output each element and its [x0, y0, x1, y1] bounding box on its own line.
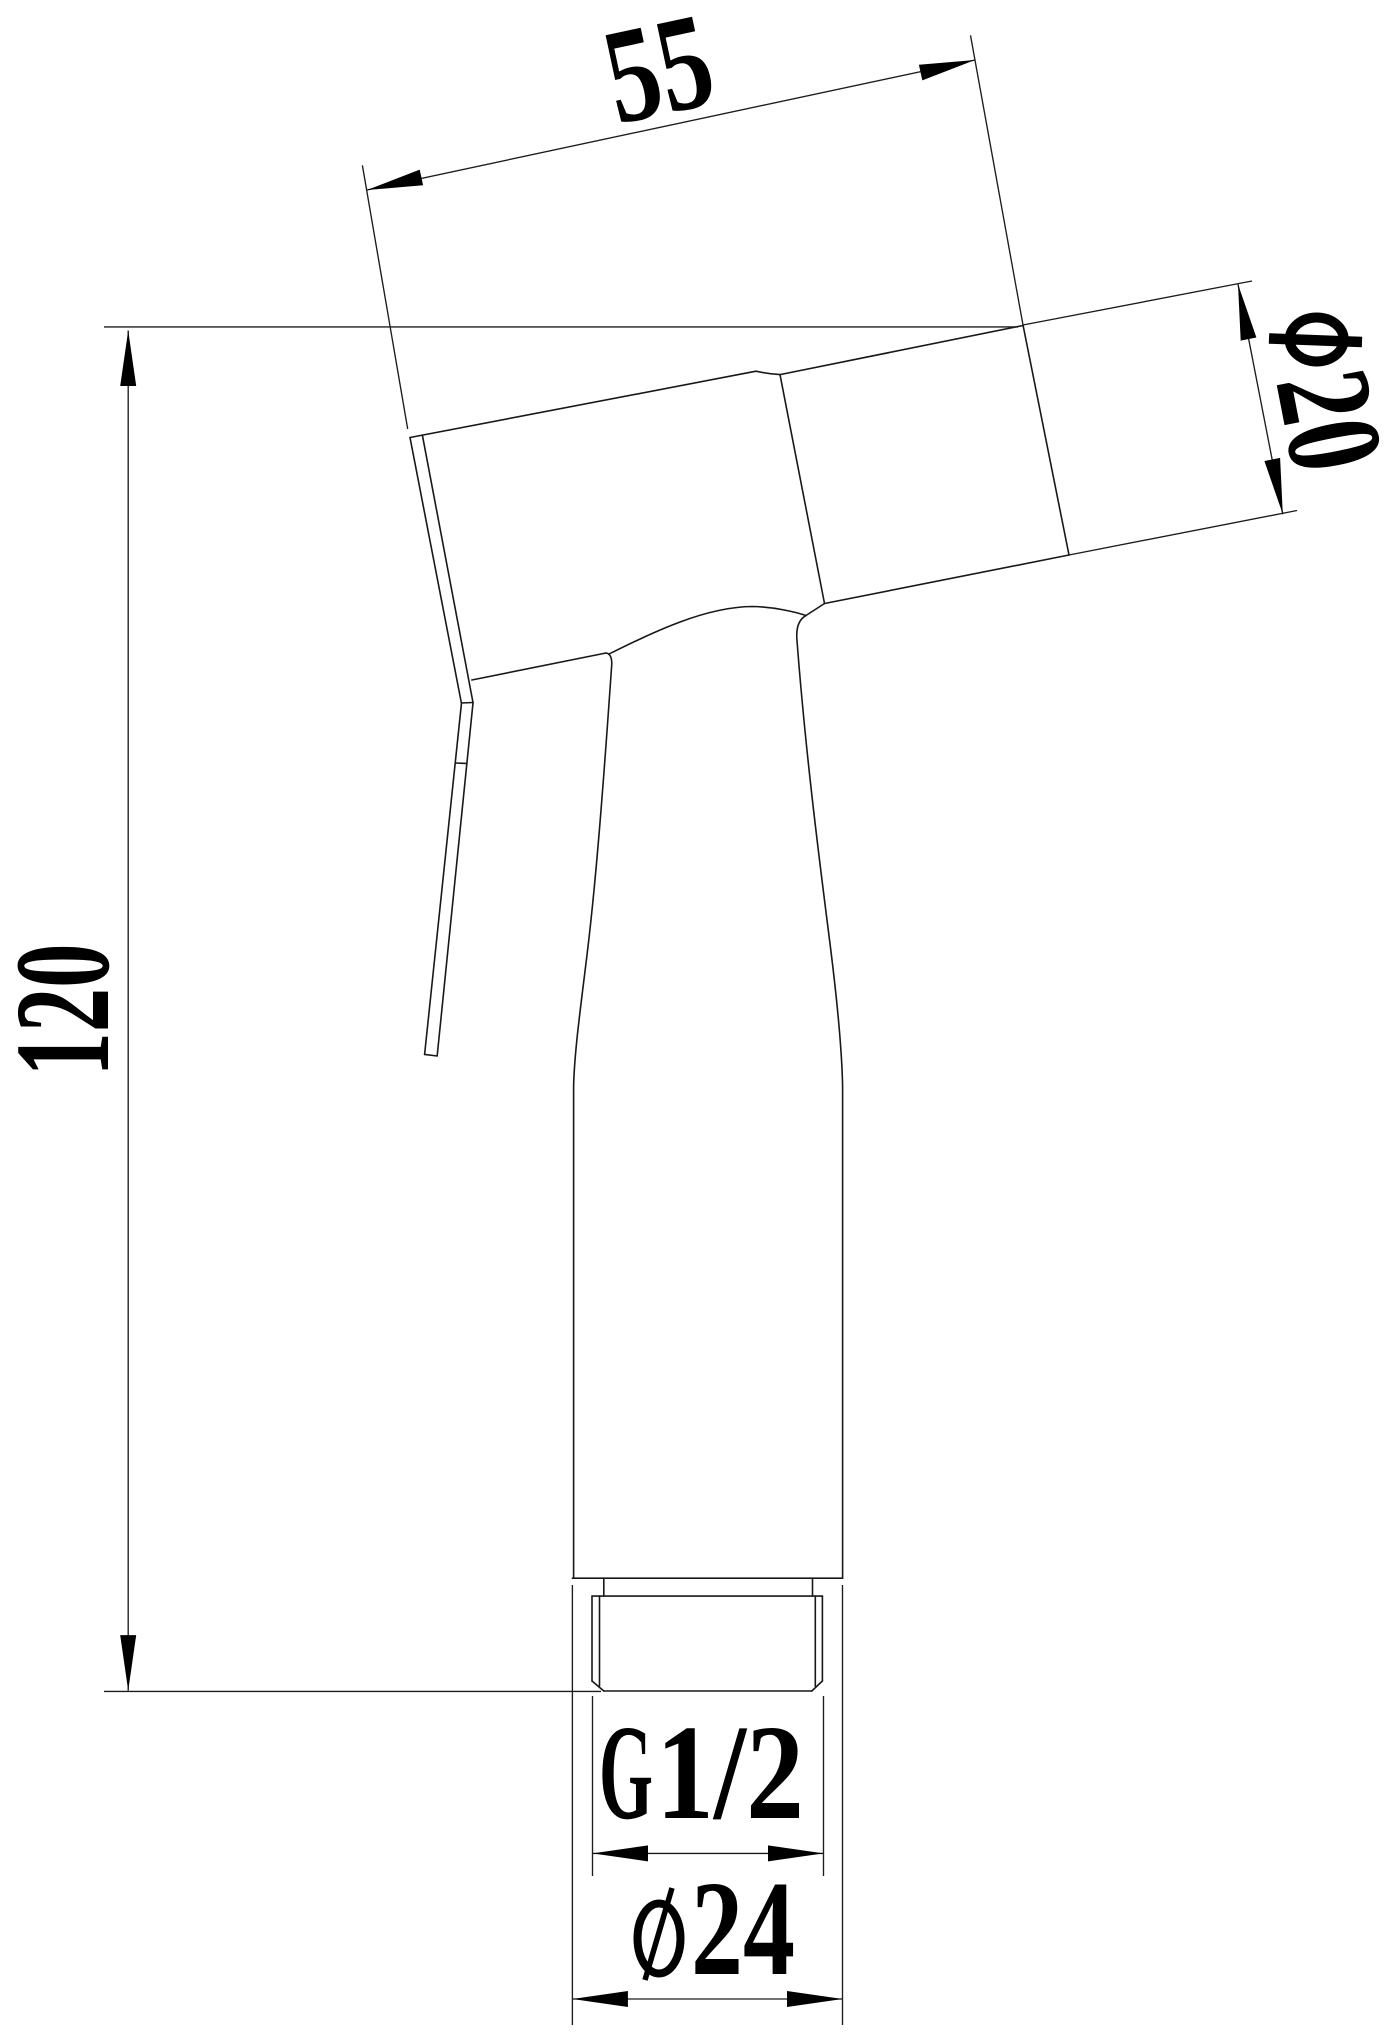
svg-text:1/2: 1/2 — [656, 1698, 804, 1848]
svg-text:G: G — [599, 1698, 653, 1848]
svg-text:120: 120 — [0, 944, 138, 1077]
svg-text:24: 24 — [691, 1854, 795, 2004]
